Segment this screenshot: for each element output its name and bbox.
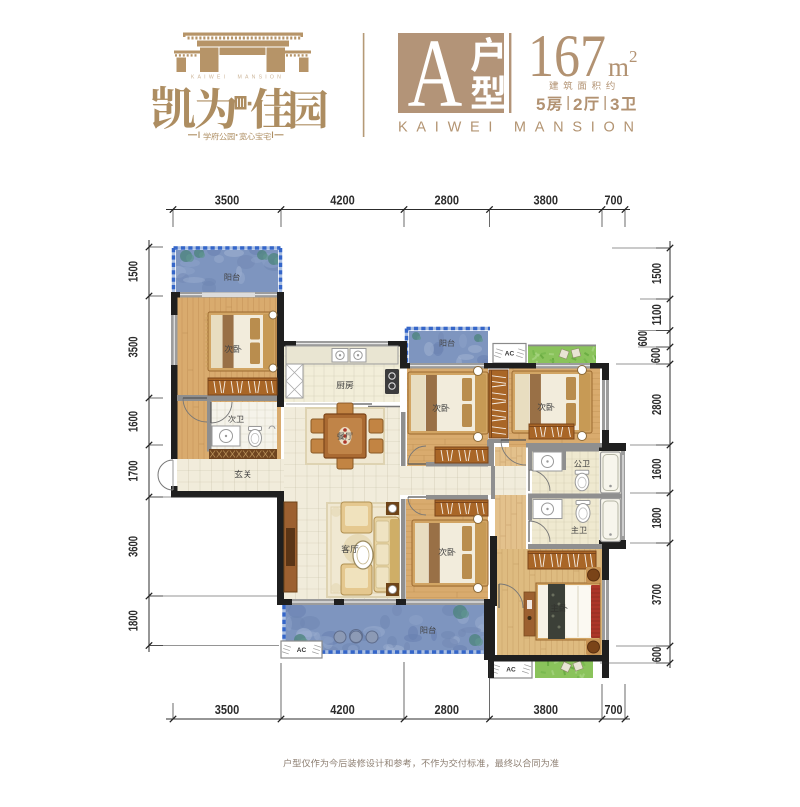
svg-text:2: 2	[573, 95, 582, 114]
svg-text:3: 3	[610, 95, 619, 114]
svg-text:2800: 2800	[650, 394, 664, 415]
svg-text:3500: 3500	[215, 702, 240, 717]
svg-text:1500: 1500	[127, 261, 141, 282]
svg-text:A: A	[408, 19, 463, 127]
svg-text:3800: 3800	[534, 702, 559, 717]
svg-text:2800: 2800	[435, 193, 460, 208]
svg-text:AC: AC	[297, 647, 307, 654]
svg-text:KAIWEI MANSION: KAIWEI MANSION	[191, 75, 284, 81]
svg-text:600: 600	[649, 348, 663, 364]
svg-text:167: 167	[528, 23, 606, 89]
svg-text:4200: 4200	[330, 193, 355, 208]
svg-text:1800: 1800	[650, 507, 664, 528]
svg-text:1800: 1800	[127, 610, 141, 631]
svg-text:1500: 1500	[650, 263, 664, 284]
svg-text:3600: 3600	[127, 536, 141, 557]
svg-text:3500: 3500	[215, 193, 240, 208]
svg-text:600: 600	[650, 647, 664, 663]
svg-text:3500: 3500	[127, 336, 141, 357]
svg-text:AC: AC	[506, 666, 516, 673]
svg-text:1100: 1100	[650, 304, 664, 325]
svg-text:600: 600	[636, 331, 650, 347]
svg-text:1600: 1600	[127, 411, 141, 432]
svg-text:4200: 4200	[330, 702, 355, 717]
svg-text:AC: AC	[505, 351, 515, 358]
svg-text:3700: 3700	[650, 584, 664, 605]
svg-text:m: m	[608, 52, 629, 82]
svg-text:1700: 1700	[127, 460, 141, 481]
svg-text:700: 700	[605, 193, 623, 208]
svg-text:1600: 1600	[650, 458, 664, 479]
svg-text:2800: 2800	[435, 702, 460, 717]
svg-text:2: 2	[629, 47, 638, 66]
svg-text:3800: 3800	[534, 193, 559, 208]
svg-text:700: 700	[605, 702, 623, 717]
svg-text:5: 5	[536, 95, 545, 114]
